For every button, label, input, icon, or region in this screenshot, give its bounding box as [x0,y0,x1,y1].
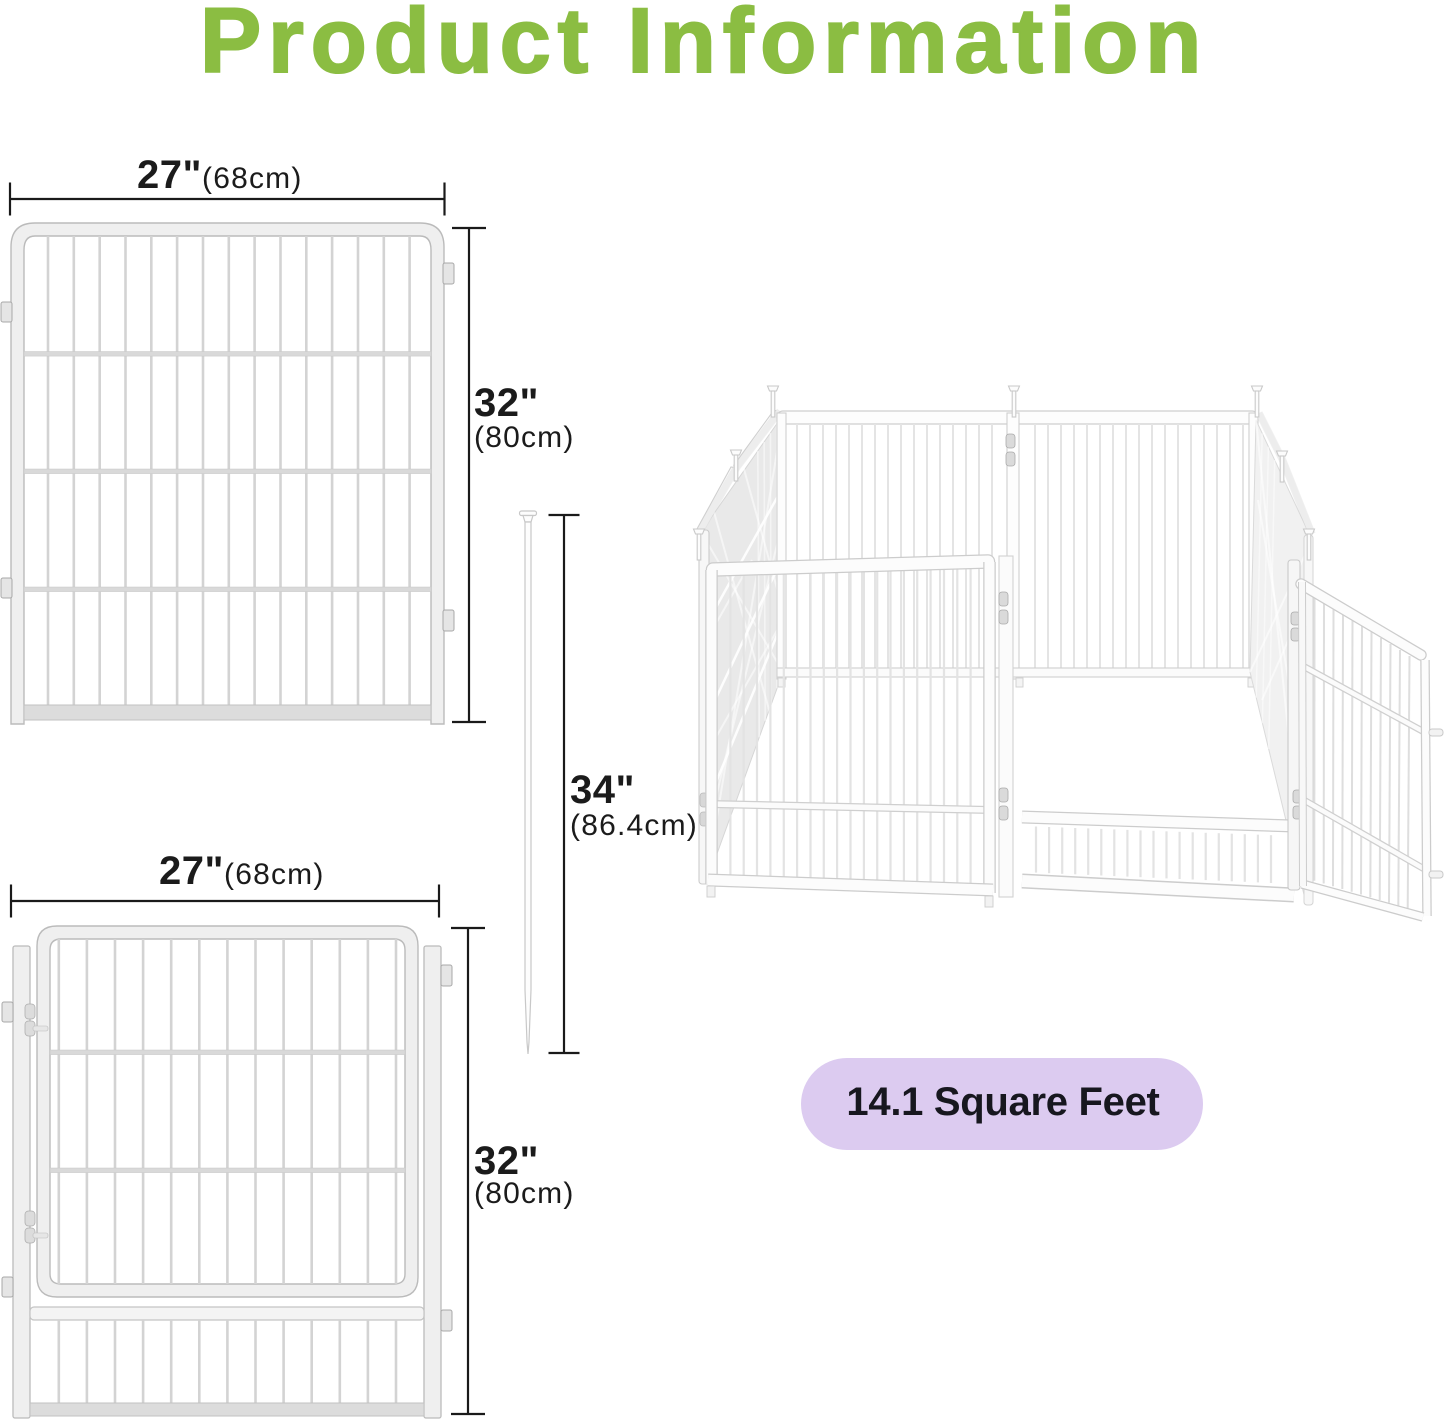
svg-text:32": 32" [474,381,539,425]
svg-text:(68cm): (68cm) [224,858,325,891]
svg-text:14.1 Square Feet: 14.1 Square Feet [846,1080,1159,1124]
svg-text:(68cm): (68cm) [202,162,303,195]
svg-text:27": 27" [159,849,224,893]
svg-text:(86.4cm): (86.4cm) [570,809,698,842]
svg-text:(80cm): (80cm) [474,1177,575,1210]
svg-text:34": 34" [570,768,635,812]
svg-text:Product Information: Product Information [200,0,1208,92]
svg-text:27": 27" [137,153,202,197]
svg-text:(80cm): (80cm) [474,421,575,454]
